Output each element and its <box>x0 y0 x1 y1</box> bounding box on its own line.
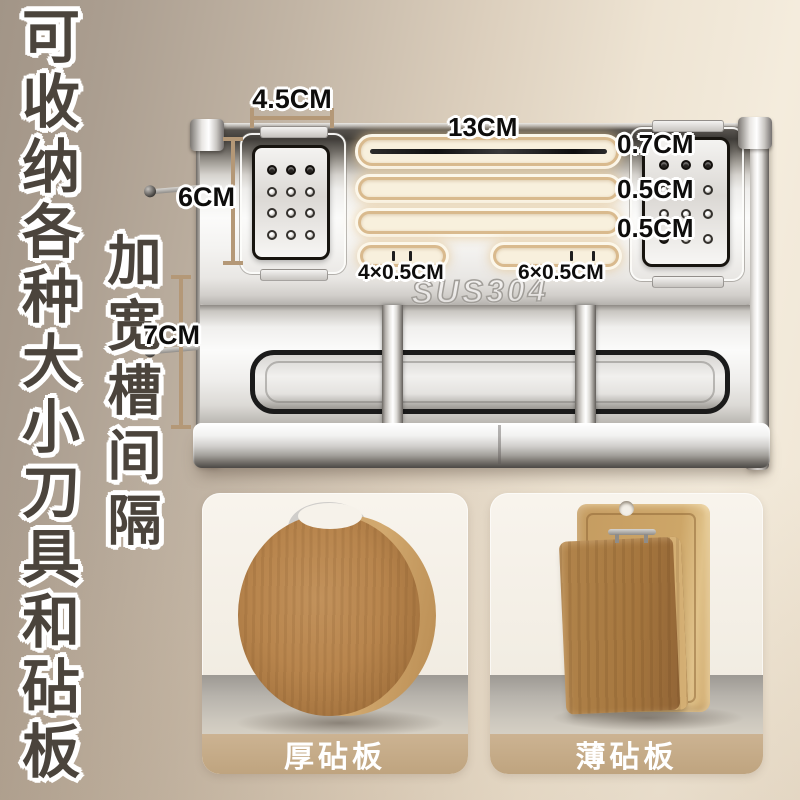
round-cutting-board <box>238 514 420 716</box>
drain-hole <box>703 185 713 195</box>
card-label: 薄砧板 <box>490 734 763 774</box>
drain-hole <box>703 234 713 244</box>
drain-hole <box>305 187 315 197</box>
headline-vertical: 可收纳各种大小刀具和砧板 <box>16 6 74 786</box>
rack-corner-cap-left <box>190 119 224 151</box>
drain-hole <box>681 160 691 170</box>
board-holder-frame <box>200 305 750 423</box>
drain-hole <box>305 165 315 175</box>
dim-label-small-slot-right: 6×0.5CM <box>518 261 604 285</box>
board-notch <box>298 503 362 529</box>
drain-hole <box>267 230 277 240</box>
drain-hole <box>305 208 315 218</box>
drain-hole <box>703 160 713 170</box>
drip-tray-base <box>193 423 770 468</box>
knife-slit <box>370 149 607 154</box>
rack-corner-cap-right <box>738 117 772 149</box>
knife-rack-photo: SUS304 <box>160 115 780 475</box>
board-handle <box>608 529 656 535</box>
slot-divider <box>409 251 412 261</box>
thin-board-front <box>559 536 688 714</box>
product-poster: 可收纳各种大小刀具和砧板 加宽槽间隔 <box>0 0 800 800</box>
drain-hole <box>286 208 296 218</box>
dim-label-long-slot: 13CM <box>448 112 517 143</box>
drain-hole <box>305 230 315 240</box>
drain-hole <box>286 165 296 175</box>
drain-hole <box>267 208 277 218</box>
dim-label-right-slot-mid: 0.5CM <box>617 174 694 205</box>
drain-hole <box>267 165 277 175</box>
card-thick-board: 厚砧板 <box>202 493 468 774</box>
board-divider-post <box>382 305 403 423</box>
dim-label-right-slot-bottom: 0.5CM <box>617 213 694 244</box>
card-label: 厚砧板 <box>202 734 468 774</box>
drain-hole <box>703 209 713 219</box>
knife-slot-05cm <box>358 177 619 200</box>
drain-hole <box>659 160 669 170</box>
hanging-hole <box>619 501 634 516</box>
drain-hole <box>267 187 277 197</box>
slot-divider <box>570 251 573 261</box>
knife-slot-05cm <box>358 211 619 234</box>
drain-hole <box>286 230 296 240</box>
board-holder-window <box>250 350 730 414</box>
dim-label-top-width: 4.5CM <box>250 84 334 115</box>
dim-label-small-slot-left: 4×0.5CM <box>358 261 444 285</box>
subheadline-vertical: 加宽槽间隔 <box>102 232 156 557</box>
dim-label-right-slot-top: 0.7CM <box>617 129 694 160</box>
board-divider-post <box>575 305 596 423</box>
drain-basket-left <box>252 145 330 260</box>
dim-bracket-lower-height <box>179 279 183 425</box>
drain-hole <box>286 187 296 197</box>
card-thin-board: 薄砧板 <box>490 493 763 774</box>
dim-label-left-height: 6CM <box>178 182 235 213</box>
dim-bracket-top-width <box>252 116 332 120</box>
dim-label-lower-height: 7CM <box>143 320 200 351</box>
slot-divider <box>392 251 395 261</box>
slot-divider <box>592 251 595 261</box>
